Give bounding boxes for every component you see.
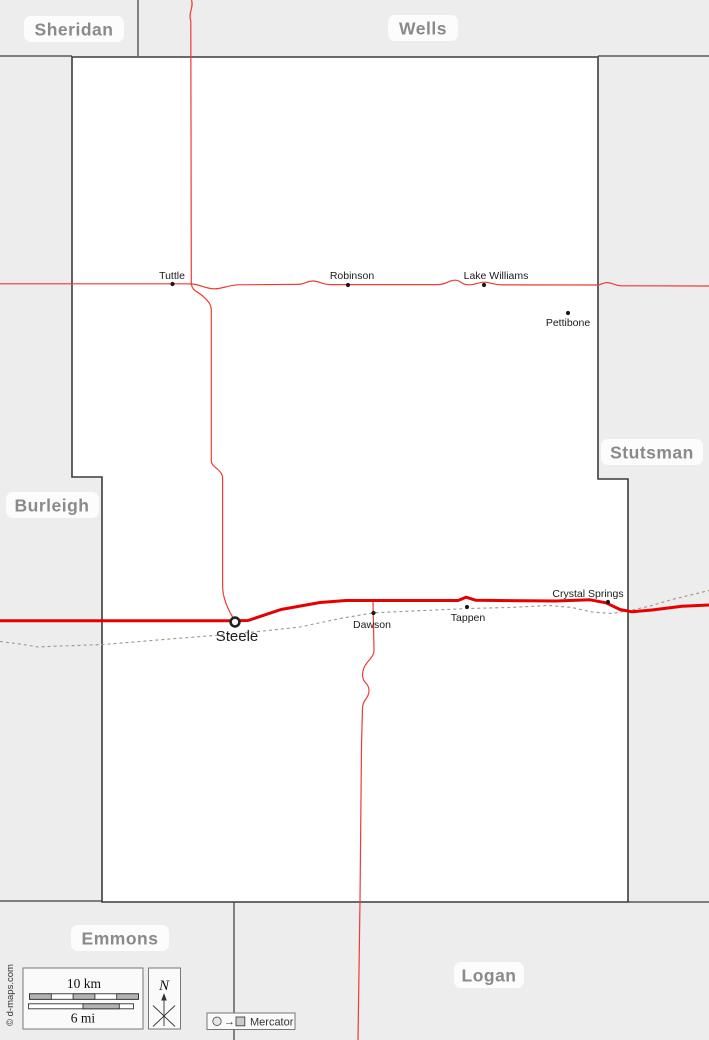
projection-square-icon (236, 1017, 245, 1026)
town-dot-tuttle (170, 282, 174, 286)
town-label-pettibone: Pettibone (546, 317, 591, 329)
scale-box: 10 km 6 mi (23, 968, 143, 1029)
scale-mi-label: 6 mi (71, 1011, 96, 1026)
county-label-emmons: Emmons (82, 929, 159, 949)
kidder-county-shape (72, 57, 628, 902)
town-label-lake-williams: Lake Williams (464, 270, 529, 282)
town-label-robinson: Robinson (330, 270, 375, 282)
county-label-logan: Logan (462, 966, 517, 986)
credit-label: © d-maps.com (5, 964, 16, 1026)
town-dot-dawson (371, 611, 375, 615)
county-seat-marker-steele (231, 618, 240, 627)
north-box: N (149, 968, 181, 1029)
county-label-stutsman: Stutsman (610, 443, 694, 463)
projection-box: → Mercator (207, 1013, 295, 1030)
projection-globe-icon (213, 1017, 221, 1025)
county-label-burleigh: Burleigh (15, 496, 90, 516)
town-dot-tappen (465, 605, 469, 609)
scale-km-label: 10 km (67, 976, 102, 991)
town-label-tappen: Tappen (451, 612, 486, 624)
town-label-tuttle: Tuttle (159, 270, 185, 282)
county-label-wells: Wells (399, 19, 447, 39)
projection-label: Mercator (250, 1017, 294, 1029)
town-dot-crystal-springs (606, 600, 610, 604)
map-stage: Tuttle Robinson Lake Williams Pettibone … (0, 0, 709, 1040)
town-label-dawson: Dawson (353, 619, 391, 631)
county-seat-label-steele: Steele (216, 628, 259, 645)
town-dot-robinson (346, 283, 350, 287)
projection-arrow-icon: → (224, 1016, 235, 1028)
county-map: Tuttle Robinson Lake Williams Pettibone … (0, 0, 709, 1040)
town-dot-lake-williams (482, 283, 486, 287)
town-label-crystal-springs: Crystal Springs (552, 588, 623, 600)
town-dot-pettibone (566, 311, 570, 315)
north-label: N (158, 978, 170, 994)
scale-km-bar (30, 994, 139, 1000)
scale-mi-bar (29, 1004, 134, 1009)
county-label-sheridan: Sheridan (35, 20, 114, 40)
